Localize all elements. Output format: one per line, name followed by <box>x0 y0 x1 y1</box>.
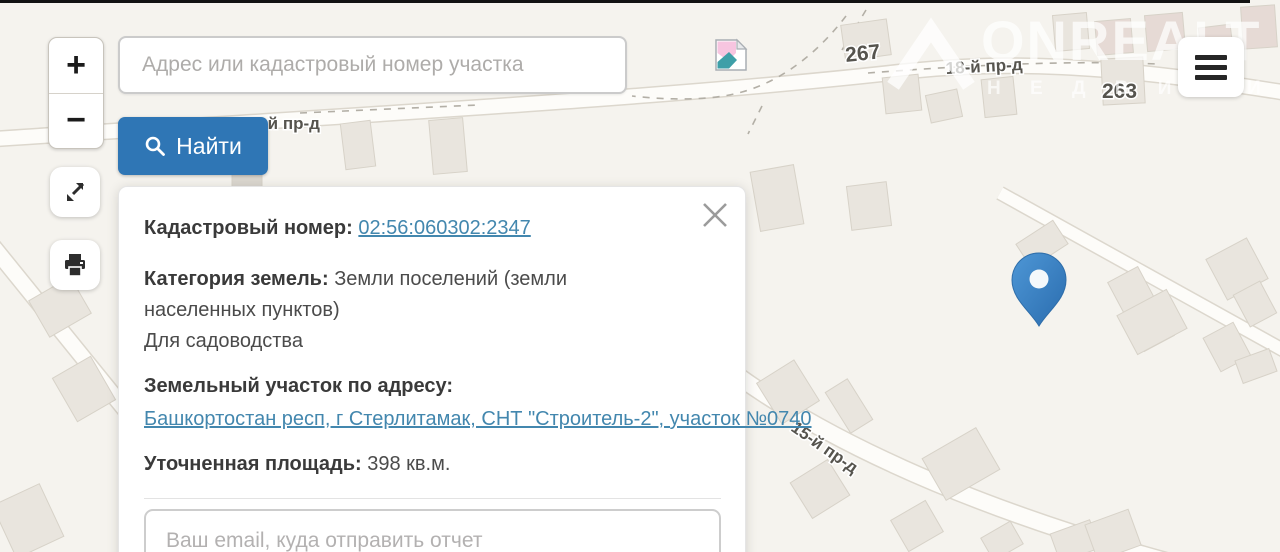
menu-icon <box>1195 55 1227 60</box>
land-category-label: Категория земель: <box>144 268 329 290</box>
area-label: Уточненная площадь: <box>144 453 362 475</box>
zoom-out-button[interactable]: − <box>49 93 103 149</box>
map-label-267: 267 <box>844 40 881 67</box>
zoom-control: + − <box>48 37 104 149</box>
printer-icon <box>61 251 89 279</box>
land-category-value-wrap: населенных пунктов) <box>144 295 721 326</box>
expand-arrows-icon <box>60 177 90 207</box>
search-icon <box>144 135 166 157</box>
close-button[interactable] <box>697 197 733 233</box>
card-divider <box>144 498 721 499</box>
map-pin-marker[interactable] <box>1012 253 1066 326</box>
close-icon <box>700 200 730 230</box>
print-button[interactable] <box>50 240 100 290</box>
map-label-18th-drive: 18-й пр-д <box>945 55 1023 78</box>
land-category-value: Земли поселений (земли <box>334 268 567 290</box>
area-value: 398 кв.м. <box>367 453 450 475</box>
map-label-partial-drive: -й пр-д <box>262 114 320 133</box>
address-link[interactable]: Башкортостан респ, г Стерлитамак, СНТ "С… <box>144 408 812 430</box>
top-border-line <box>0 0 1250 3</box>
zoom-in-button[interactable]: + <box>49 38 103 93</box>
cadastral-number-label: Кадастровый номер: <box>144 217 353 239</box>
map-label-263: 263 <box>1102 80 1137 103</box>
parcel-info-card: Кадастровый номер: 02:56:060302:2347 Кат… <box>118 186 746 552</box>
cadastral-number-link[interactable]: 02:56:060302:2347 <box>358 217 530 239</box>
find-button[interactable]: Найти <box>118 117 268 175</box>
address-label: Земельный участок по адресу: <box>144 375 453 397</box>
broken-image-icon <box>716 40 746 70</box>
land-use-value: Для садоводства <box>144 326 721 357</box>
email-input[interactable] <box>144 509 721 552</box>
menu-button[interactable] <box>1178 37 1244 97</box>
find-button-label: Найти <box>176 133 242 160</box>
fullscreen-button[interactable] <box>50 167 100 217</box>
search-input[interactable] <box>118 36 627 94</box>
